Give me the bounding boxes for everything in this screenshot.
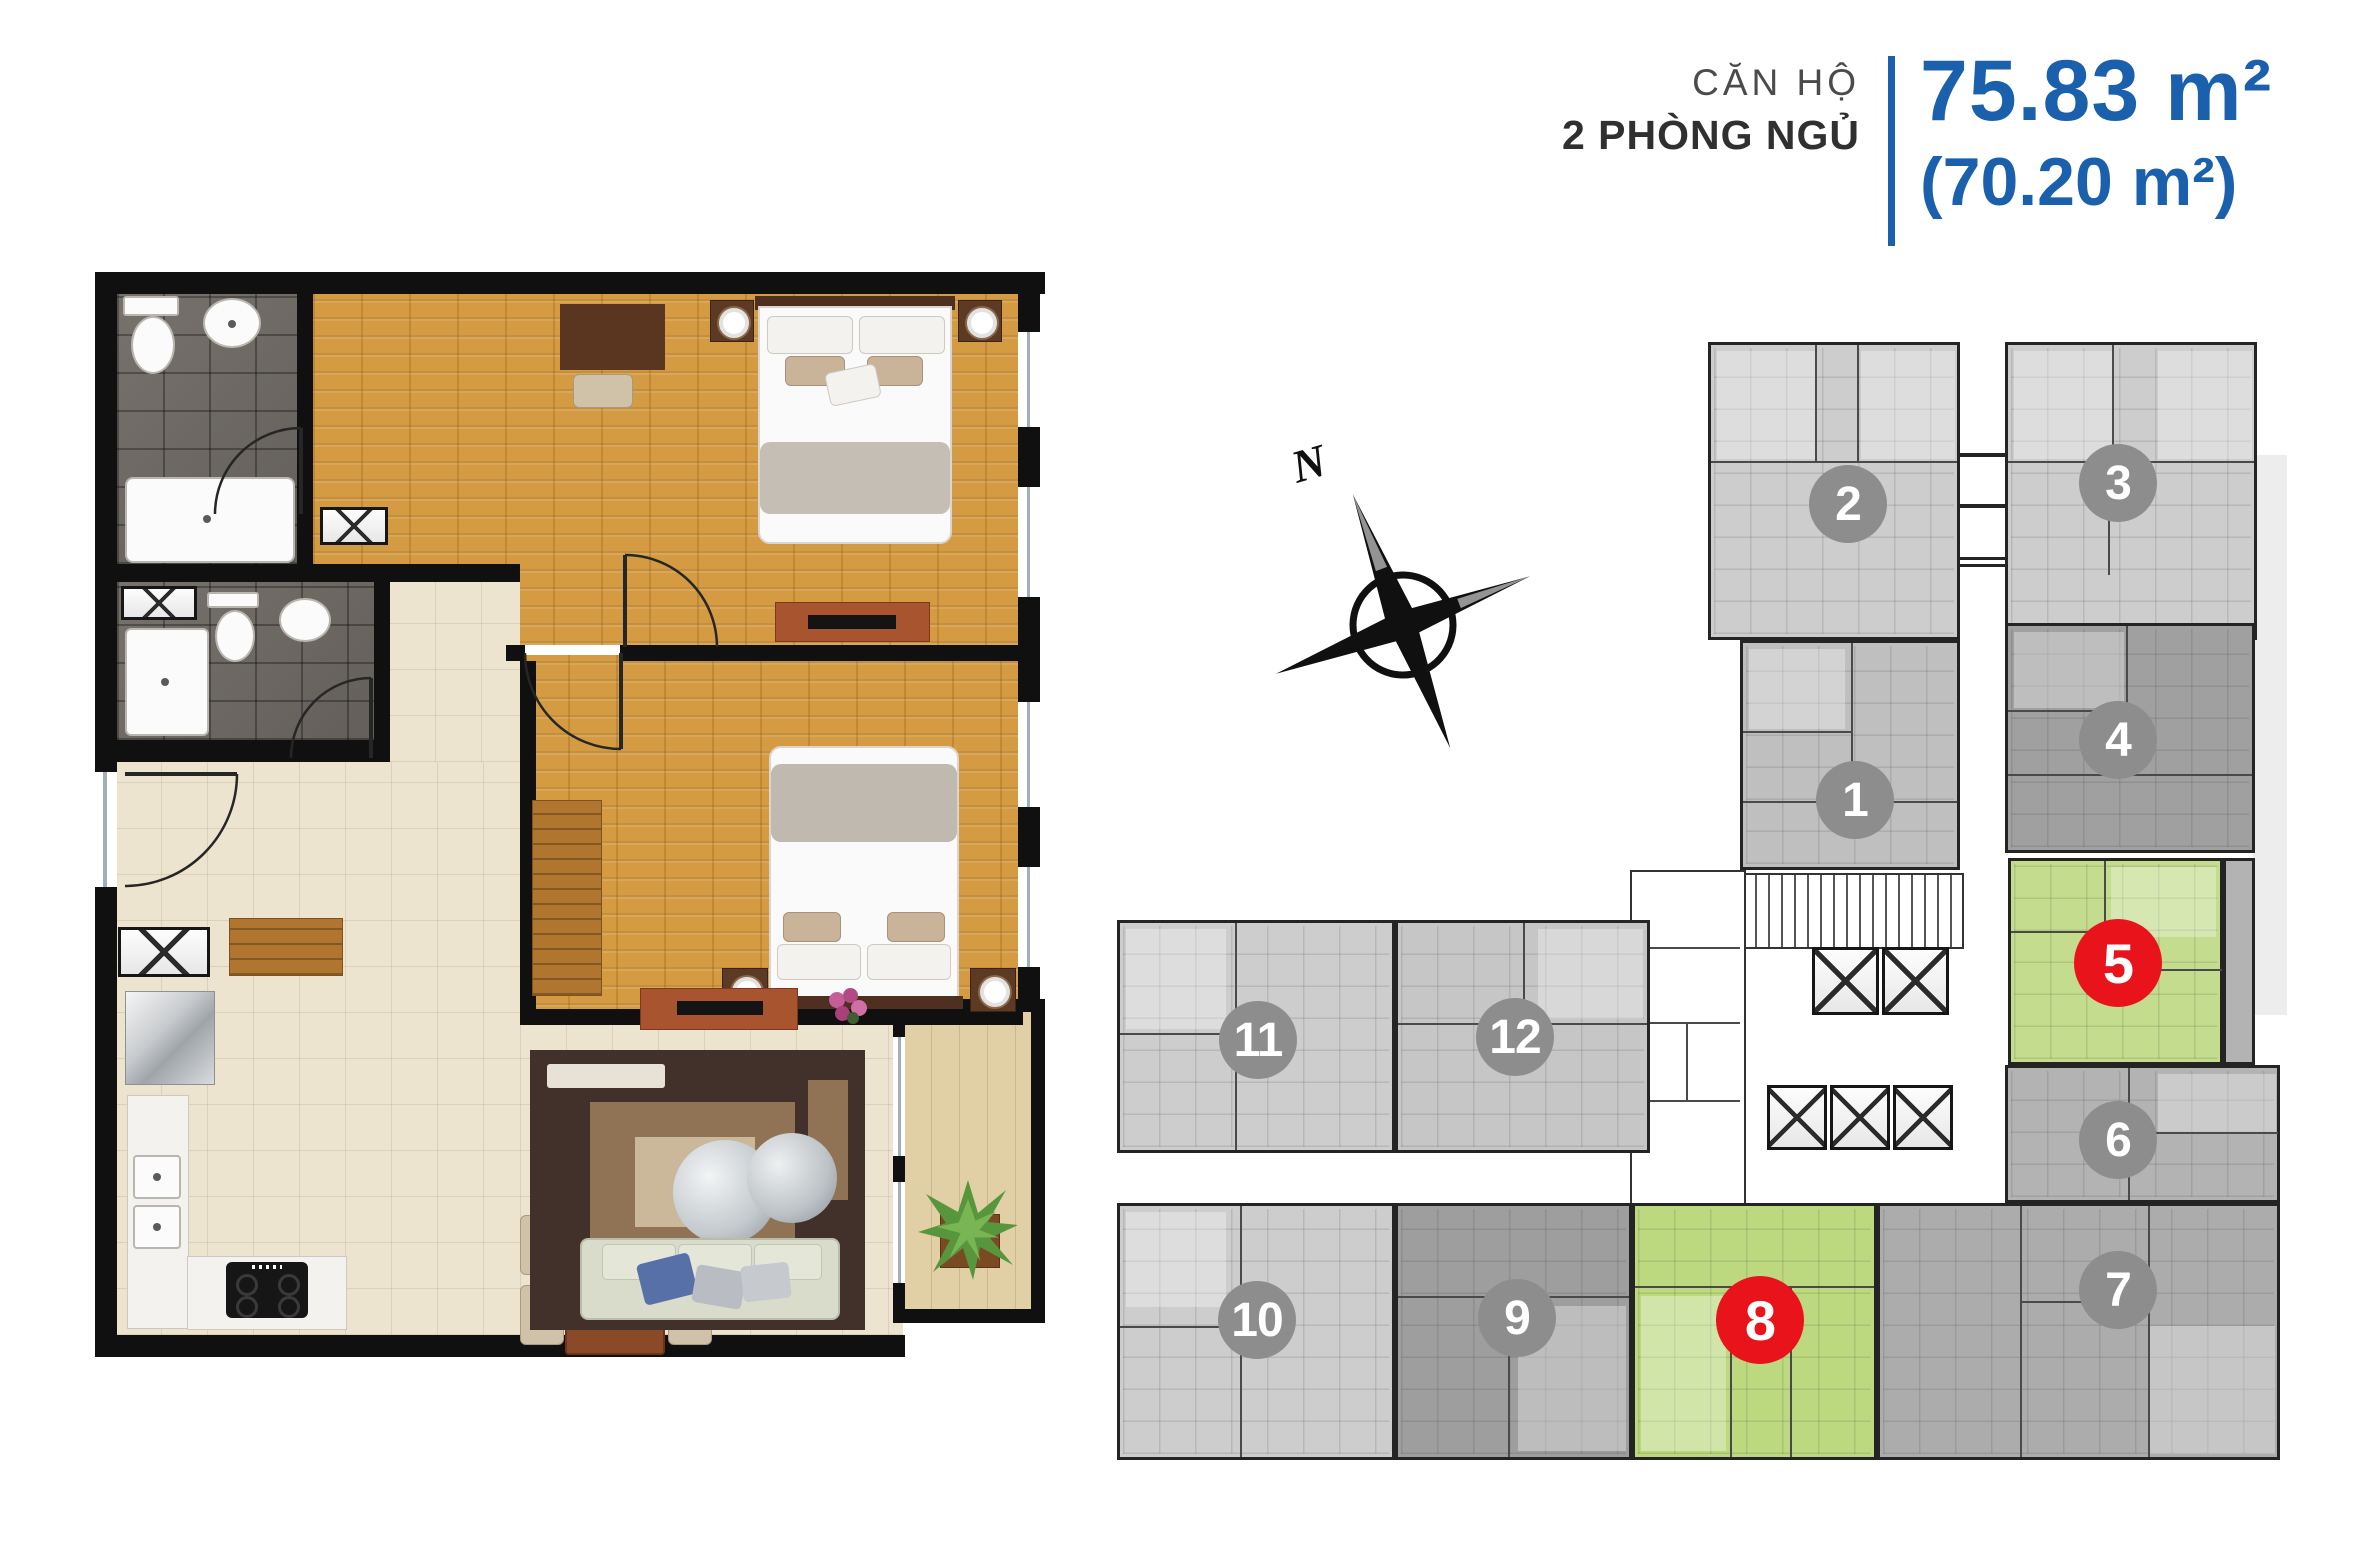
unit-badge-7[interactable]: 7	[2079, 1251, 2157, 1329]
unit-badge-1[interactable]: 1	[1816, 761, 1894, 839]
area-secondary-value: (70.20 m²)	[1920, 148, 2360, 216]
header-category-label: CĂN HỘ	[1530, 62, 1860, 104]
elevator-icon	[1882, 947, 1949, 1015]
unit-badge-9[interactable]: 9	[1478, 1279, 1556, 1357]
unit-badge-11[interactable]: 11	[1219, 1001, 1297, 1079]
header-type-label: 2 PHÒNG NGỦ	[1530, 112, 1860, 159]
header-divider	[1888, 56, 1895, 246]
elevator-icon	[1893, 1085, 1953, 1150]
unit-badge-3[interactable]: 3	[2079, 444, 2157, 522]
unit-badge-8[interactable]: 8	[1716, 1276, 1804, 1364]
elevator-icon	[1767, 1085, 1827, 1150]
unit-badge-4[interactable]: 4	[2079, 701, 2157, 779]
area-main-value: 75.83 m²	[1920, 48, 2360, 134]
tower-link-bridge	[1960, 557, 2005, 567]
elevator-icon	[1830, 1085, 1890, 1150]
header-areas: 75.83 m² (70.20 m²)	[1920, 48, 2360, 216]
apartment-floor-plan	[95, 272, 1045, 1357]
unit-badge-2[interactable]: 2	[1809, 465, 1887, 543]
plan-shadow	[2253, 455, 2287, 1015]
tower-link-bridge	[1960, 453, 2005, 508]
header: CĂN HỘ 2 PHÒNG NGỦ	[1530, 62, 1860, 159]
unit-badge-6[interactable]: 6	[2079, 1101, 2157, 1179]
core-stairs	[1740, 873, 1964, 949]
unit-4-extension	[2223, 858, 2255, 1065]
door-swings	[95, 272, 1045, 1357]
elevator-icon	[1812, 947, 1879, 1015]
site-key-plan: 1 2 3 4 5 6 7 8 9 10 11 12	[1085, 335, 2300, 1470]
floorplan-sheet: CĂN HỘ 2 PHÒNG NGỦ 75.83 m² (70.20 m²) N	[0, 0, 2362, 1561]
unit-badge-5[interactable]: 5	[2074, 919, 2162, 1007]
unit-area-7[interactable]	[1877, 1203, 2280, 1460]
unit-badge-12[interactable]: 12	[1476, 998, 1554, 1076]
unit-badge-10[interactable]: 10	[1218, 1281, 1296, 1359]
